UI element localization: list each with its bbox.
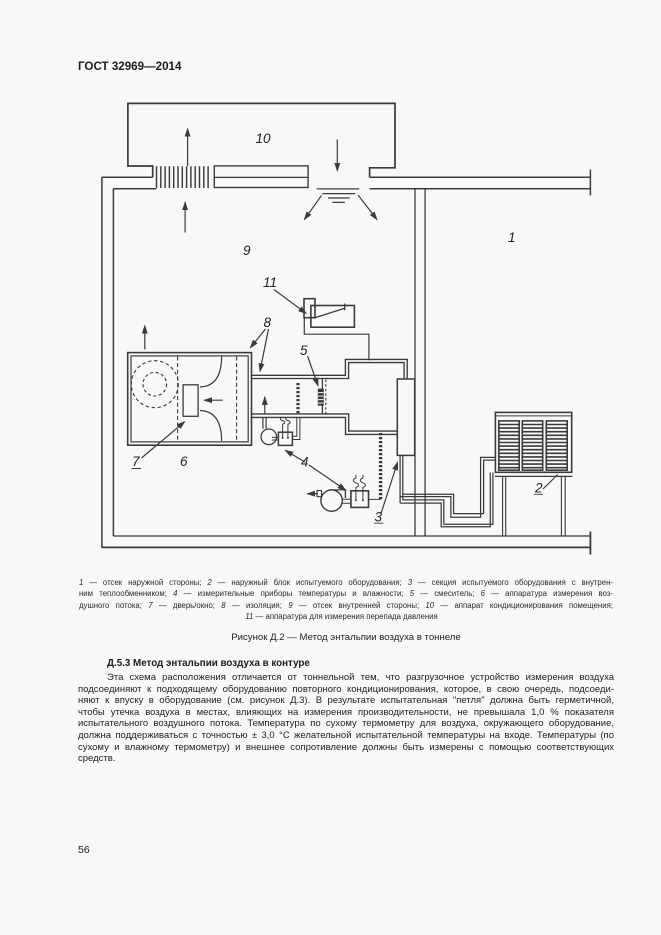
svg-text:9: 9: [243, 243, 251, 258]
svg-text:6: 6: [180, 454, 188, 469]
svg-text:3: 3: [375, 510, 383, 525]
svg-text:4: 4: [301, 455, 309, 470]
svg-text:5: 5: [300, 343, 308, 358]
svg-text:7: 7: [132, 454, 140, 469]
svg-text:11: 11: [263, 275, 277, 290]
svg-text:2: 2: [534, 480, 543, 495]
svg-text:8: 8: [264, 315, 272, 330]
svg-text:1: 1: [508, 230, 516, 245]
svg-text:10: 10: [256, 131, 272, 146]
